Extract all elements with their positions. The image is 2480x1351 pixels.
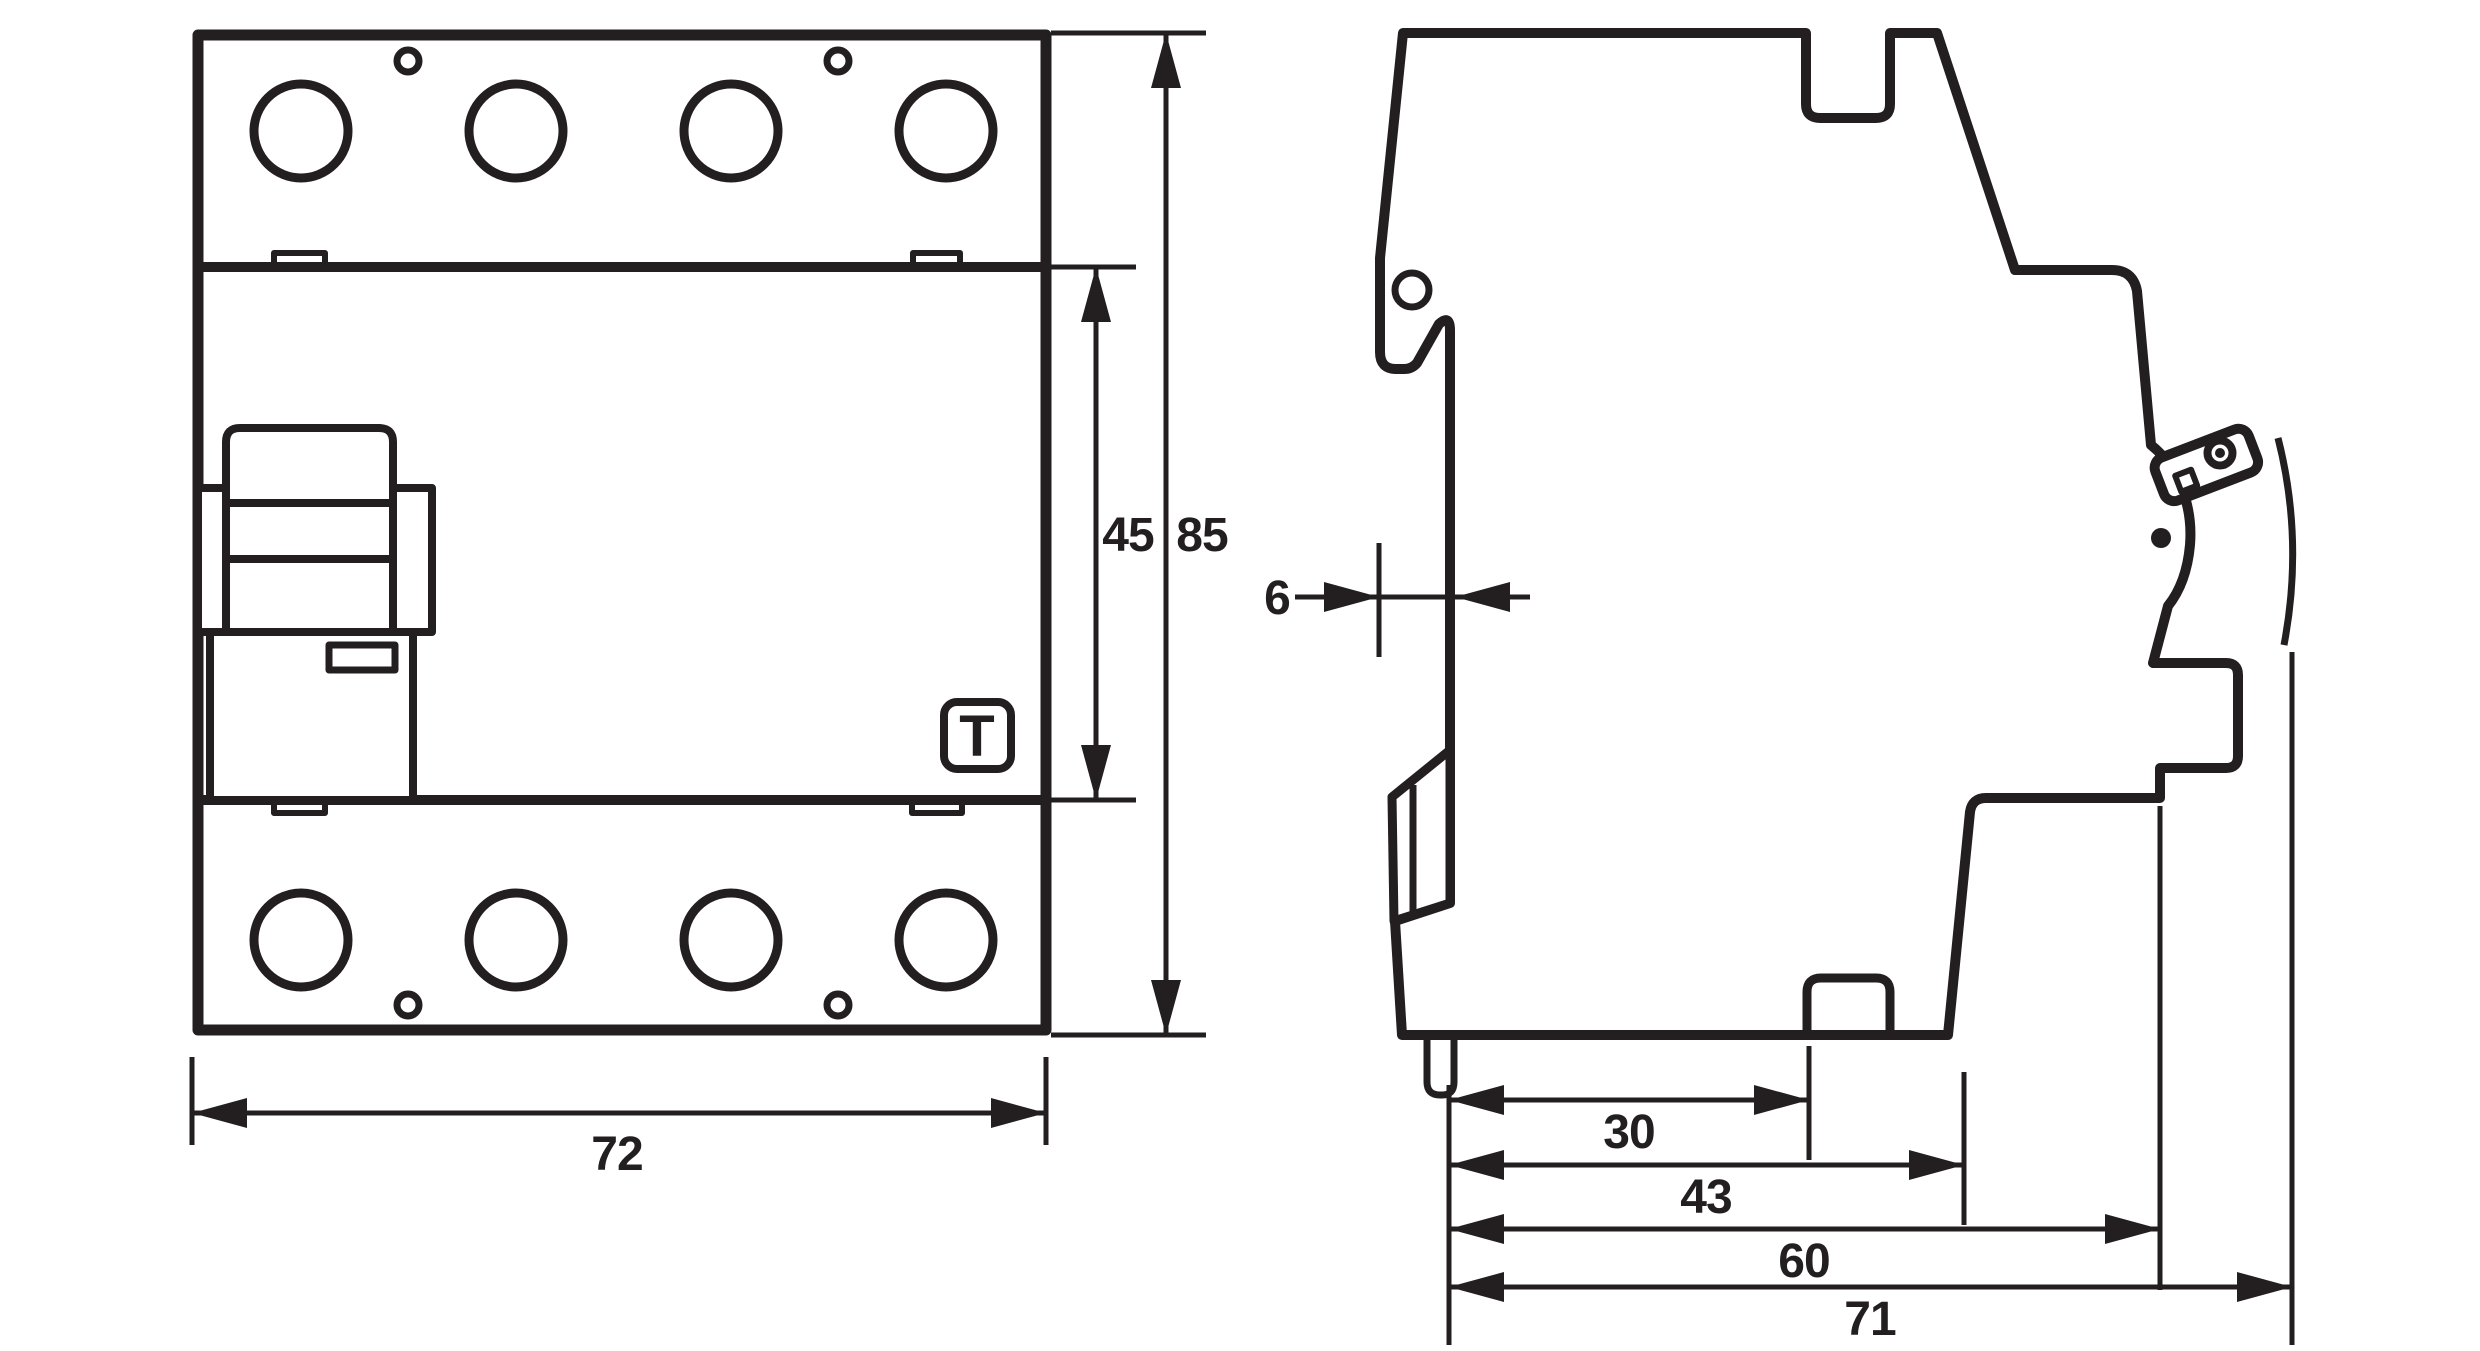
- lever-outline: [2151, 426, 2261, 505]
- arrowhead-up-icon: [1151, 33, 1181, 88]
- arrowhead-right-icon: [1909, 1150, 1964, 1180]
- lever-hole-center: [2215, 448, 2225, 458]
- arrowhead-right-icon: [2237, 1272, 2292, 1302]
- arrowhead-left-icon: [1449, 1214, 1504, 1244]
- switch-body-block: [210, 632, 413, 800]
- arrowhead-right-icon: [2105, 1214, 2160, 1244]
- technical-drawing-page: T 72 45 85: [0, 0, 2480, 1351]
- arrowhead-right-icon: [991, 1098, 1046, 1128]
- arrowhead-down-icon: [1081, 745, 1111, 800]
- arrowhead-right-icon: [1754, 1085, 1809, 1115]
- din-rail-clip: [1392, 750, 1450, 921]
- lever-pivot-dot: [2151, 528, 2171, 548]
- dimensional-drawing-canvas: T 72 45 85: [0, 0, 2480, 1351]
- side-view: [1380, 33, 2293, 1095]
- arrowhead-down-icon: [1151, 980, 1181, 1035]
- switch-toggle-lever: [226, 428, 393, 633]
- dim-width-72: 72: [192, 1057, 1046, 1181]
- clip-outline: [1392, 750, 1450, 921]
- test-button-letter: T: [959, 704, 994, 769]
- arrowhead-left-icon: [1449, 1272, 1504, 1302]
- arrowhead-left-icon: [192, 1098, 247, 1128]
- dim-depth-43: 43: [1449, 1072, 1964, 1225]
- dimension-value: 85: [1176, 509, 1228, 562]
- arrowhead-right-icon: [1324, 582, 1379, 612]
- dimension-value: 60: [1778, 1235, 1829, 1288]
- dimension-value: 6: [1264, 572, 1290, 625]
- dimension-value: 43: [1680, 1171, 1731, 1224]
- dimension-value: 30: [1603, 1106, 1654, 1159]
- side-housing-outline: [1380, 33, 2238, 1035]
- arrowhead-left-icon: [1449, 1150, 1504, 1180]
- front-view: T: [193, 35, 1046, 1030]
- arrowhead-left-icon: [1449, 1085, 1504, 1115]
- dimension-value: 72: [591, 1128, 642, 1181]
- arrowhead-up-icon: [1081, 267, 1111, 322]
- dim-height-45: 45: [1051, 267, 1154, 800]
- lever-swing-arc: [2278, 438, 2293, 645]
- side-toggle-lever: [2151, 426, 2261, 505]
- toggle-switch-assembly: [198, 428, 432, 800]
- dimension-value: 71: [1844, 1293, 1896, 1346]
- dim-depth-30: 30: [1449, 1046, 1809, 1160]
- dimension-value: 45: [1102, 509, 1154, 562]
